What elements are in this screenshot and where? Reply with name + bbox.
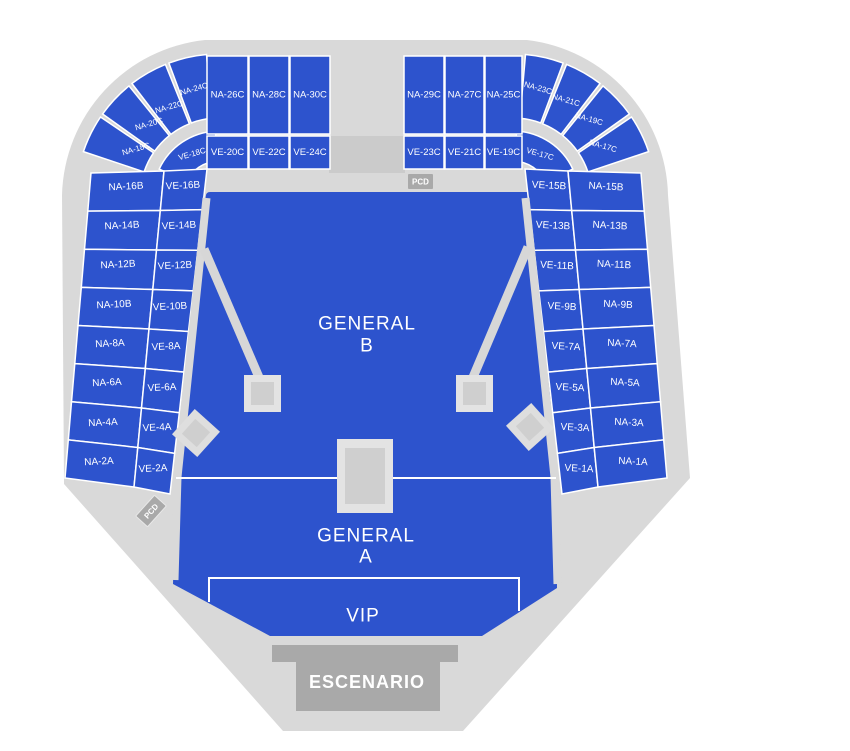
section-label-na-2a: NA-2A xyxy=(84,456,114,469)
section-label-ve-22c: VE-22C xyxy=(252,147,285,158)
section-label-ve-11b: VE-11B xyxy=(540,260,575,273)
section-label-ve-16b: VE-16B xyxy=(166,180,201,193)
general-b-label-line2: B xyxy=(360,336,374,357)
section-label-ve-19c: VE-19C xyxy=(487,147,520,158)
section-label-ve-4a: VE-4A xyxy=(142,422,172,435)
section-label-na-25c: NA-25C xyxy=(487,90,521,101)
section-label-ve-8a: VE-8A xyxy=(151,341,181,354)
section-label-ve-13b: VE-13B xyxy=(536,220,571,233)
section-label-na-10b: NA-10B xyxy=(96,299,132,312)
section-label-ve-20c: VE-20C xyxy=(211,147,244,158)
section-label-na-26c: NA-26C xyxy=(211,90,245,101)
section-label-ve-2a: VE-2A xyxy=(138,463,168,476)
pcd-badge-top: PCD xyxy=(408,174,433,189)
section-label-na-5a: NA-5A xyxy=(610,377,640,390)
section-label-na-1a: NA-1A xyxy=(618,456,648,469)
section-label-ve-23c: VE-23C xyxy=(407,147,440,158)
seat-map-svg: ESCENARIO PCD PCD NA-24C NA-22C NA-20C N… xyxy=(0,0,850,751)
general-b-label-line1: GENERAL xyxy=(318,314,416,335)
section-label-ve-3a: VE-3A xyxy=(560,422,590,435)
general-a-label-line2: A xyxy=(359,547,373,568)
section-label-na-9b: NA-9B xyxy=(603,299,633,312)
section-label-na-16b: NA-16B xyxy=(108,181,144,194)
section-label-na-15b: NA-15B xyxy=(588,181,624,194)
tower-right-inner xyxy=(463,382,486,405)
section-label-na-3a: NA-3A xyxy=(614,417,644,430)
section-label-ve-12b: VE-12B xyxy=(158,260,193,273)
stage-top-bar xyxy=(272,645,458,662)
section-label-na-30c: NA-30C xyxy=(293,90,327,101)
section-label-ve-1a: VE-1A xyxy=(564,463,594,476)
tower-left-inner xyxy=(251,382,274,405)
section-label-ve-14b: VE-14B xyxy=(162,220,197,233)
venue-seat-map: ESCENARIO PCD PCD NA-24C NA-22C NA-20C N… xyxy=(0,0,850,751)
general-a-label-line1: GENERAL xyxy=(317,526,415,547)
section-label-na-29c: NA-29C xyxy=(407,90,441,101)
stage-label: ESCENARIO xyxy=(309,672,425,692)
section-label-na-6a: NA-6A xyxy=(92,377,122,390)
section-label-na-8a: NA-8A xyxy=(95,338,125,351)
control-booth-inner xyxy=(345,448,385,504)
section-label-ve-7a: VE-7A xyxy=(551,341,581,354)
section-label-na-12b: NA-12B xyxy=(100,259,136,272)
section-label-na-13b: NA-13B xyxy=(592,220,628,233)
section-label-ve-21c: VE-21C xyxy=(448,147,481,158)
section-label-ve-10b: VE-10B xyxy=(153,301,188,314)
section-label-na-27c: NA-27C xyxy=(448,90,482,101)
section-label-ve-6a: VE-6A xyxy=(147,382,177,395)
section-label-ve-9b: VE-9B xyxy=(547,301,577,314)
section-label-na-11b: NA-11B xyxy=(597,259,632,272)
section-label-na-7a: NA-7A xyxy=(607,338,637,351)
section-label-ve-5a: VE-5A xyxy=(555,382,585,395)
section-label-na-4a: NA-4A xyxy=(88,417,118,430)
walkway-strip xyxy=(329,136,405,173)
section-label-ve-24c: VE-24C xyxy=(293,147,326,158)
section-label-na-28c: NA-28C xyxy=(252,90,286,101)
pcd-badge-top-label: PCD xyxy=(412,178,429,187)
section-label-ve-15b: VE-15B xyxy=(532,180,567,193)
vip-label: VIP xyxy=(346,606,380,627)
section-label-na-14b: NA-14B xyxy=(104,220,140,233)
